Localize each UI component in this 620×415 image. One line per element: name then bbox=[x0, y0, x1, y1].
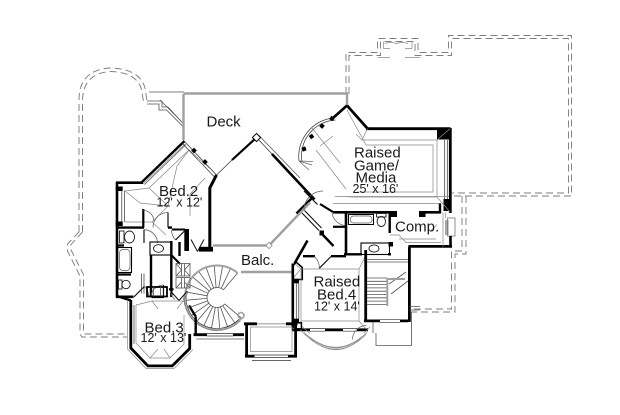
svg-text:12' x 14': 12' x 14' bbox=[314, 300, 360, 314]
svg-text:12' x 12': 12' x 12' bbox=[157, 196, 203, 210]
svg-text:Deck: Deck bbox=[207, 114, 242, 131]
svg-text:12' x 13': 12' x 13' bbox=[141, 331, 187, 345]
svg-text:Balc.: Balc. bbox=[241, 252, 274, 269]
svg-text:Comp.: Comp. bbox=[395, 219, 439, 236]
svg-text:25' x 16': 25' x 16' bbox=[353, 182, 399, 196]
